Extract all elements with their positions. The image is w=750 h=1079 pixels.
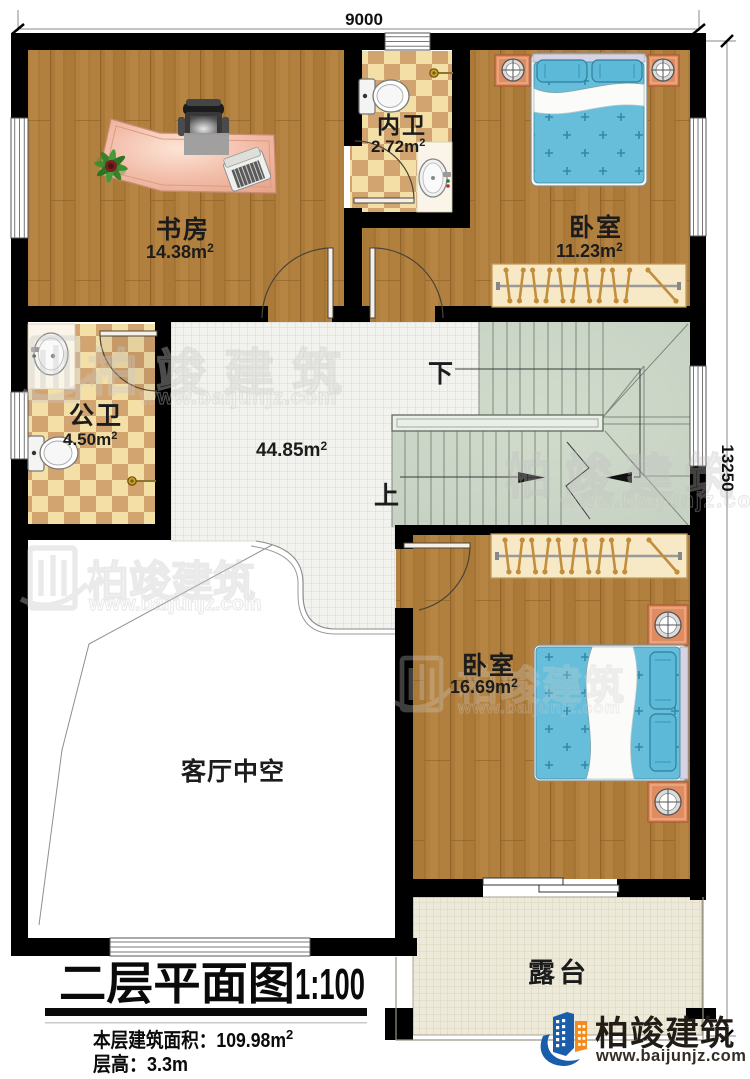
svg-text:上: 上: [374, 482, 399, 510]
svg-text:2: 2: [286, 1027, 293, 1042]
svg-text:公卫: 公卫: [69, 402, 123, 430]
svg-text:www.baijunjz.com: www.baijunjz.com: [88, 593, 262, 615]
svg-text:层高：3.3m: 层高：3.3m: [93, 1052, 188, 1076]
svg-text:客厅中空: 客厅中空: [181, 757, 285, 786]
svg-text:书房: 书房: [156, 215, 210, 244]
svg-text:2.72m2: 2.72m2: [371, 137, 425, 156]
svg-text:本层建筑面积：109.98m: 本层建筑面积：109.98m: [93, 1028, 286, 1052]
svg-text:内卫: 内卫: [377, 112, 427, 138]
svg-text:露台: 露台: [528, 957, 590, 988]
svg-text:下: 下: [428, 360, 453, 388]
svg-text:4.50m2: 4.50m2: [63, 430, 117, 449]
svg-text:44.85m2: 44.85m2: [256, 439, 327, 461]
svg-text:14.38m2: 14.38m2: [146, 241, 214, 262]
svg-text:www.baijunjz.com: www.baijunjz.com: [139, 386, 337, 409]
svg-text:9000: 9000: [345, 10, 383, 29]
svg-text:卧室: 卧室: [462, 651, 516, 680]
svg-text:16.69m2: 16.69m2: [450, 676, 518, 697]
svg-text:二层平面图1:100: 二层平面图1:100: [59, 958, 365, 1009]
svg-text:13250: 13250: [718, 444, 737, 491]
svg-text:www.baijunjz.com: www.baijunjz.com: [559, 489, 750, 512]
svg-text:www.baijunjz.com: www.baijunjz.com: [595, 1047, 746, 1065]
svg-text:www.baijunjz.com: www.baijunjz.com: [457, 698, 621, 717]
svg-text:卧室: 卧室: [569, 213, 623, 242]
svg-text:11.23m2: 11.23m2: [556, 240, 623, 261]
